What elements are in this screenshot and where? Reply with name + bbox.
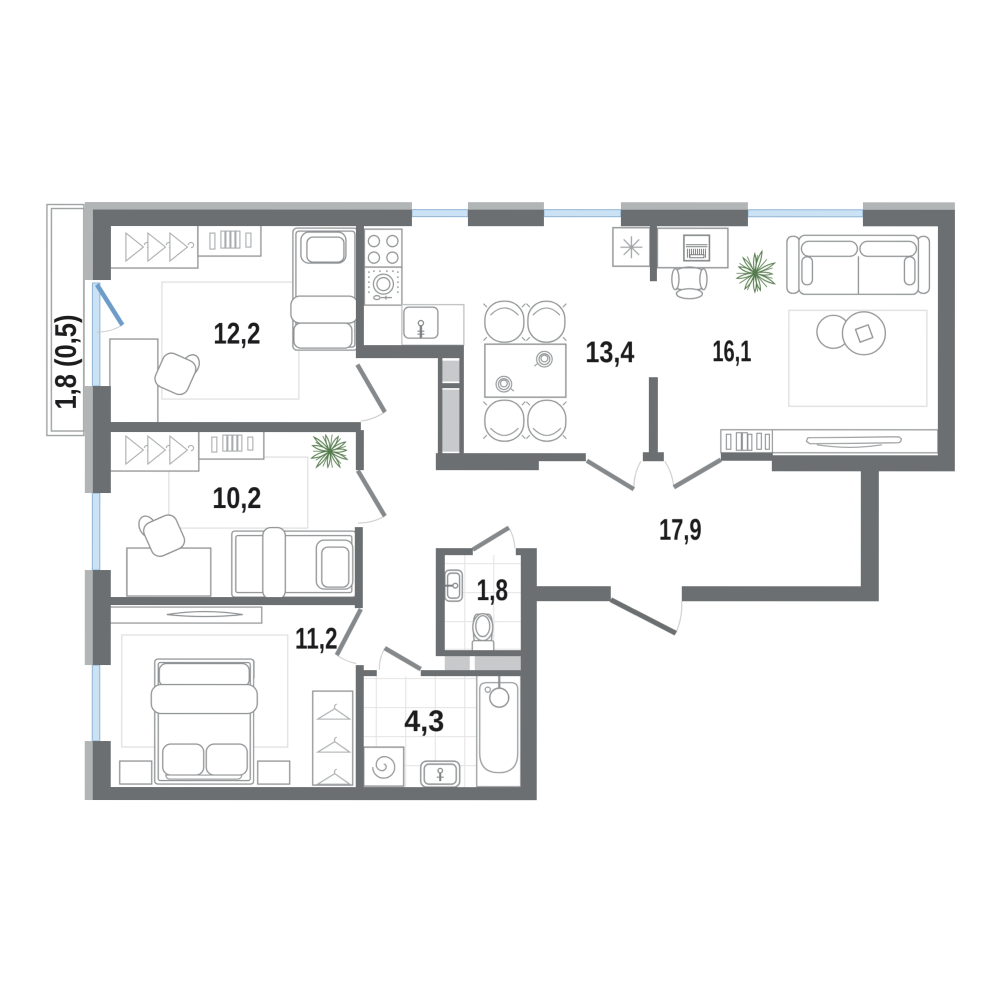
svg-text:10,2: 10,2 bbox=[212, 482, 261, 515]
svg-text:12,2: 12,2 bbox=[213, 318, 260, 351]
svg-text:17,9: 17,9 bbox=[659, 514, 702, 547]
svg-text:1,8: 1,8 bbox=[477, 574, 509, 607]
svg-text:1,8 (0,5): 1,8 (0,5) bbox=[50, 315, 83, 410]
svg-text:11,2: 11,2 bbox=[295, 623, 338, 656]
svg-text:16,1: 16,1 bbox=[712, 335, 751, 368]
svg-text:13,4: 13,4 bbox=[585, 336, 634, 369]
svg-text:4,3: 4,3 bbox=[404, 705, 444, 738]
